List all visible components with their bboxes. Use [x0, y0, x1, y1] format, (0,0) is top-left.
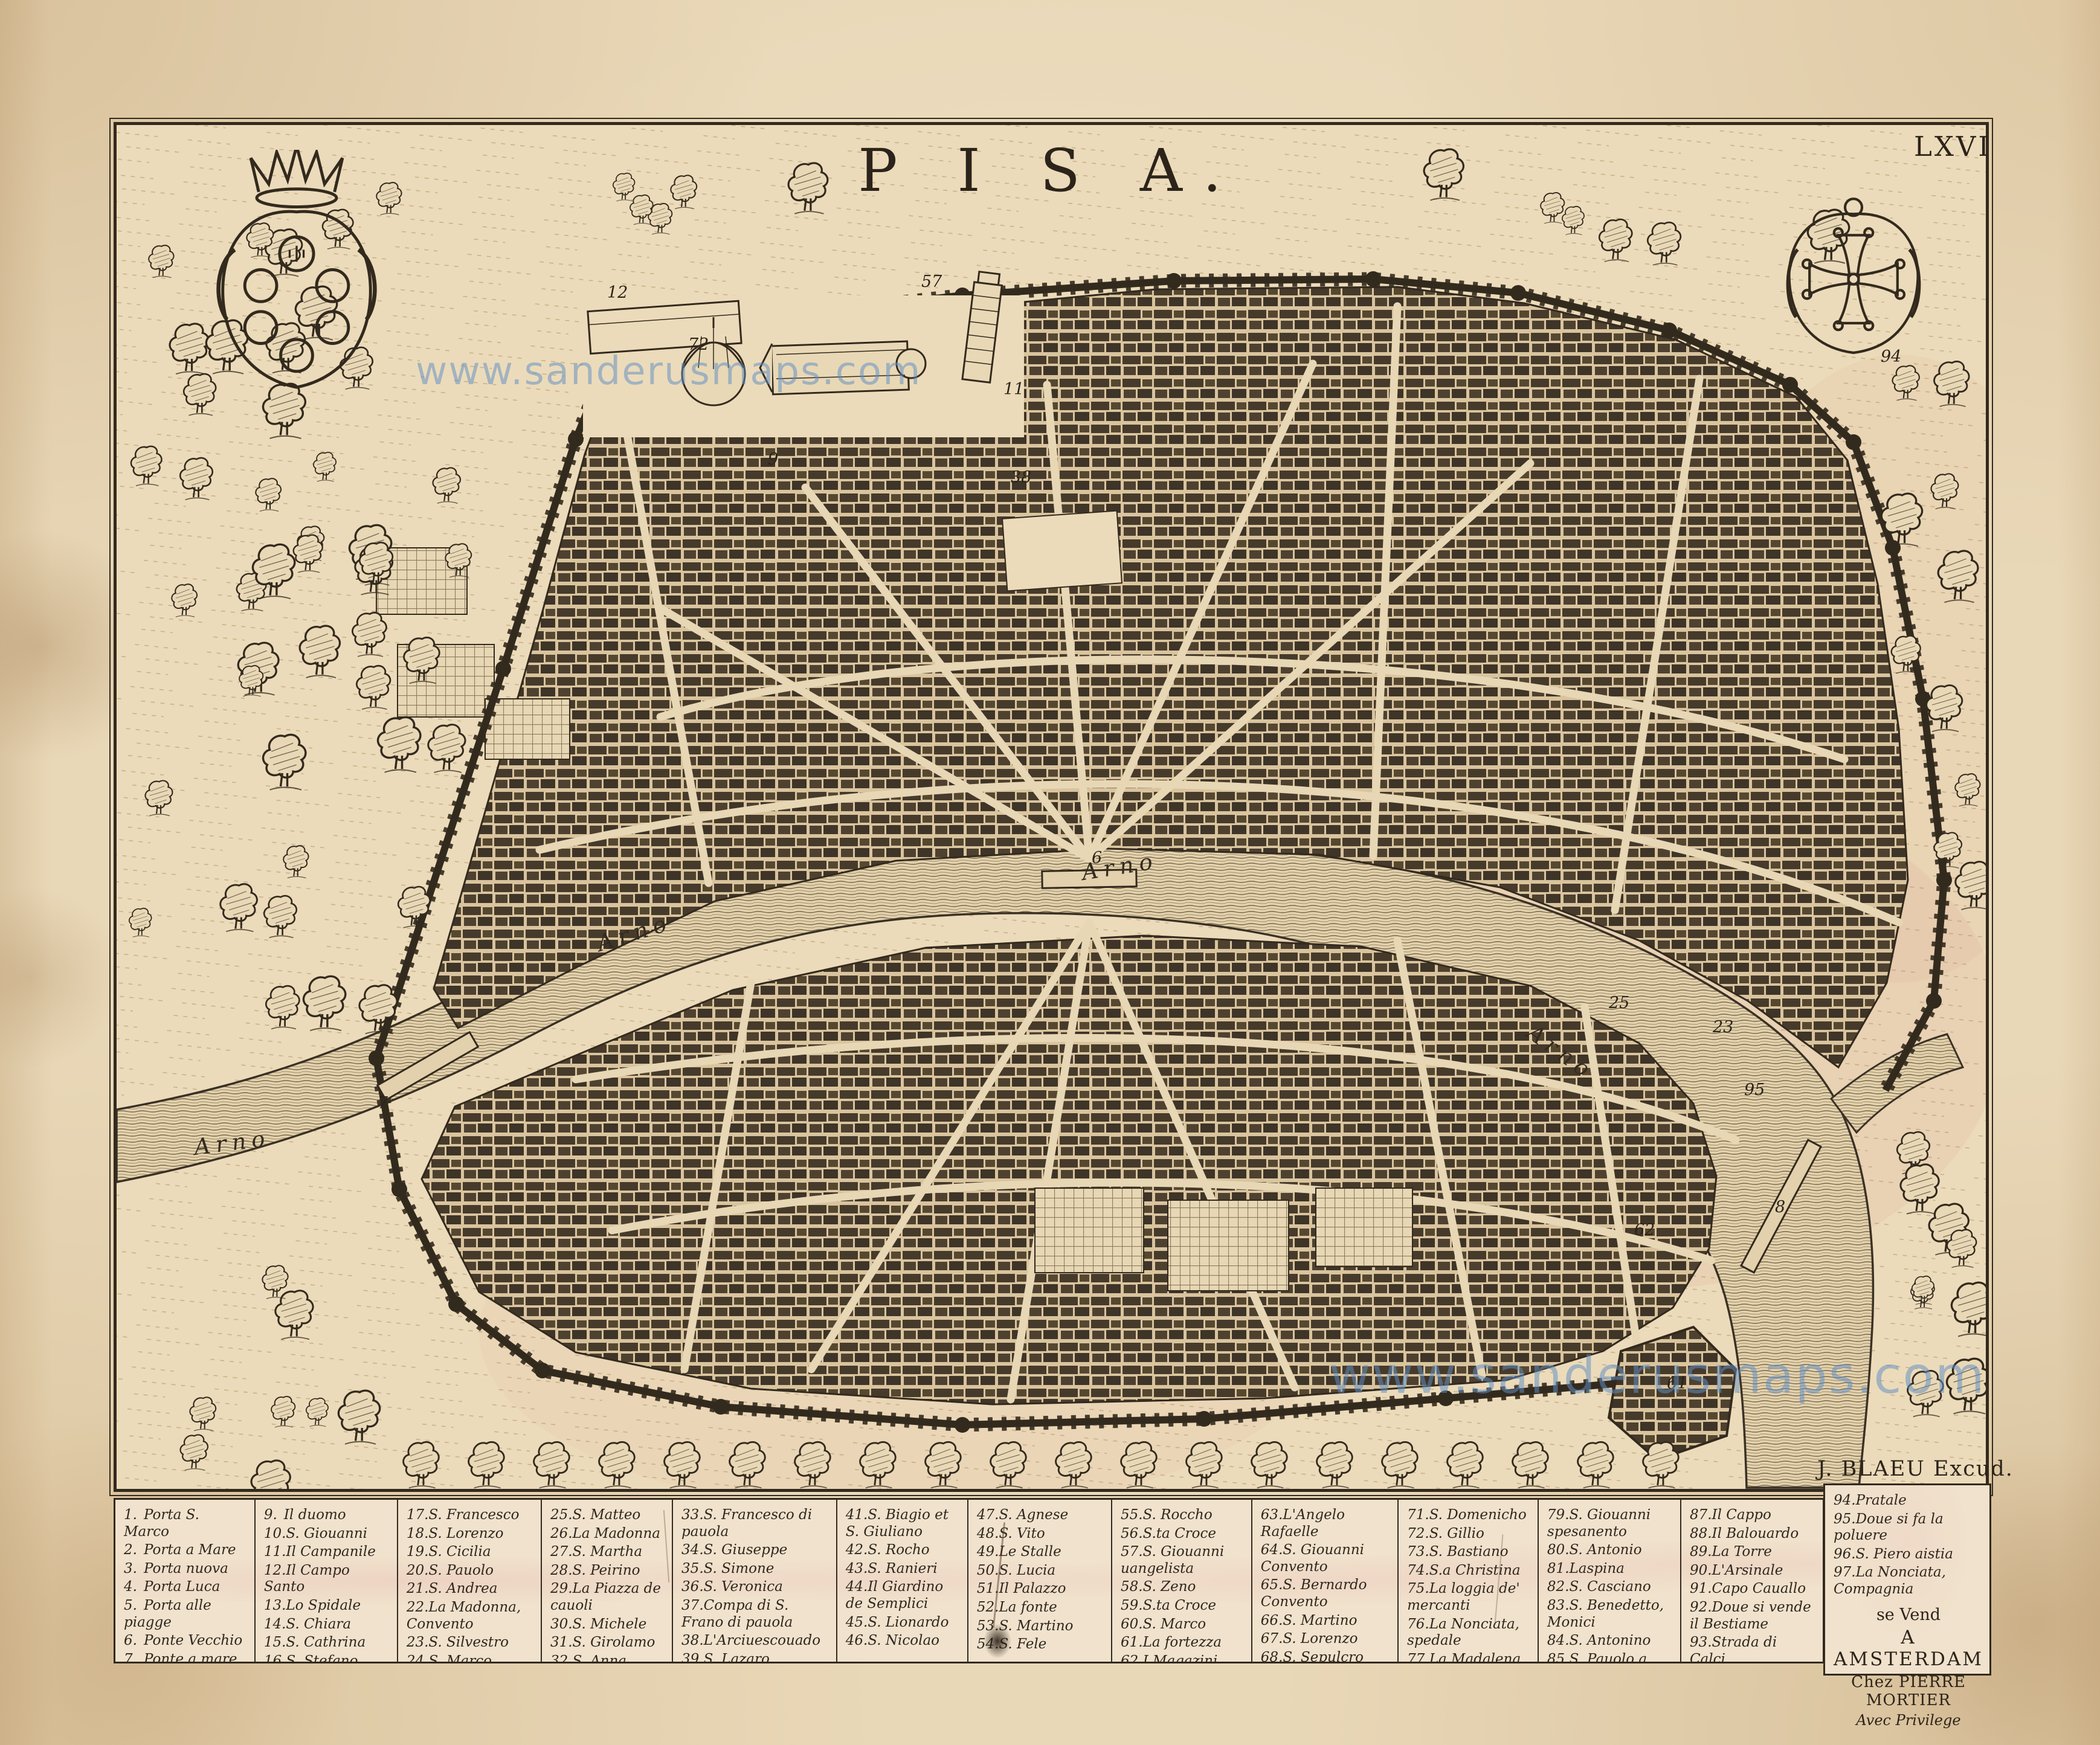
wall-tower: [955, 1417, 970, 1433]
legend-item: 75.La loggia de' mercanti: [1407, 1581, 1532, 1614]
fleur-de-lis-icon: [289, 246, 303, 262]
feature-number: 11: [1003, 380, 1024, 399]
legend-column: 63.L'Angelo Rafaelle64.S. Giouanni Conve…: [1252, 1500, 1399, 1662]
legend-item: 4.Porta Luca: [124, 1579, 248, 1596]
wall-tower: [1365, 271, 1381, 287]
engraver-credit: J. BLAEU Excud.: [1817, 1457, 1992, 1481]
legend-item: 57.S. Giouanni uangelista: [1121, 1544, 1245, 1577]
wall-tower: [1782, 377, 1798, 393]
legend-item: 63.L'Angelo Rafaelle: [1261, 1507, 1391, 1540]
publisher-imprint: se Vend A AMSTERDAM Chez PIERRE MORTIER …: [1834, 1605, 1983, 1729]
legend-item: 16.S. Stefano: [264, 1653, 391, 1662]
legend-item: 35.S. Simone: [681, 1561, 830, 1578]
legend-item: 33.S. Francesco di pauola: [681, 1507, 830, 1540]
legend-item: 79.S. Giouanni spesanento: [1547, 1507, 1674, 1540]
legend-item: 36.S. Veronica: [681, 1579, 830, 1596]
legend-item: 37.Compa di S. Frano di pauola: [681, 1598, 830, 1631]
pisa-coat-of-arms: [1769, 190, 1938, 371]
legend-item: 47.S. Agnese: [977, 1507, 1105, 1524]
legend-item: 41.S. Biagio et S. Giuliano: [846, 1507, 961, 1540]
pisan-cross-icon: [1803, 228, 1904, 330]
map-title: P I S A.: [858, 137, 1242, 205]
legend-item: 5.Porta alle piagge: [124, 1598, 248, 1631]
legend-column: 33.S. Francesco di pauola34.S. Giuseppe3…: [673, 1500, 837, 1662]
legend-item: 55.S. Roccho: [1121, 1507, 1245, 1524]
legend-column: 25.S. Matteo26.La Madonna27.S. Martha28.…: [542, 1500, 673, 1662]
legend-item: 3.Porta nuova: [124, 1561, 248, 1578]
imprint-line: A AMSTERDAM: [1834, 1627, 1983, 1670]
legend-item: 25.S. Matteo: [550, 1507, 666, 1524]
wall-tower: [1936, 872, 1952, 888]
feature-number: 57: [921, 272, 942, 291]
legend-item: 14.S. Chiara: [264, 1616, 391, 1633]
legend-item: 7.Ponte a mare: [124, 1651, 248, 1662]
legend-item: 66.S. Martino: [1261, 1613, 1391, 1630]
legend-item: 59.S.ta Croce: [1121, 1598, 1245, 1615]
wall-tower: [1196, 1411, 1212, 1427]
legend-item: 26.La Madonna: [550, 1526, 666, 1543]
wall-tower: [1166, 273, 1182, 289]
legend-item: 74.S.a Christina: [1407, 1563, 1532, 1579]
legend-item: 72.S. Gillio: [1407, 1526, 1532, 1543]
legend-item: 93.Strada di Calci: [1690, 1634, 1817, 1662]
legend-item: 76.La Nonciata, spedale: [1407, 1616, 1532, 1650]
legend-item: 88.Il Balouardo: [1690, 1526, 1817, 1543]
legend-item: 45.S. Lionardo: [846, 1615, 961, 1631]
feature-number: 12: [607, 283, 628, 302]
legend-item: 12.Il Campo Santo: [264, 1563, 391, 1596]
legend-item: 9.Il duomo: [264, 1507, 391, 1524]
legend-item: 97.La Nonciata, Compagnia: [1834, 1564, 1983, 1598]
legend-item: 18.S. Lorenzo: [407, 1526, 535, 1543]
legend-item: 56.S.ta Croce: [1121, 1526, 1245, 1543]
legend-item: 71.S. Domenicho: [1407, 1507, 1532, 1524]
feature-number: 25: [1608, 994, 1629, 1012]
legend-item: 46.S. Nicolao: [846, 1633, 961, 1650]
plate-number: LXVI: [1914, 130, 1991, 162]
imprint-line: Avec Privilege: [1834, 1712, 1983, 1729]
feature-number: 62: [1634, 1221, 1655, 1239]
feature-number: 23: [1712, 1018, 1733, 1036]
wall-tower: [1846, 434, 1861, 450]
legend-last-column: 94.Pratale95.Doue si fa la poluere96.S. …: [1823, 1483, 1991, 1676]
legend-item: 64.S. Giouanni Convento: [1261, 1542, 1391, 1575]
wall-tower: [1661, 323, 1677, 338]
legend-item: 17.S. Francesco: [407, 1507, 535, 1524]
legend-item: 49.Le Stalle: [977, 1544, 1105, 1561]
wall-tower: [1510, 285, 1526, 301]
legend-item: 27.S. Martha: [550, 1544, 666, 1561]
ink-blot: [984, 1624, 1011, 1659]
wall-tower: [448, 1296, 464, 1312]
legend-column: 79.S. Giouanni spesanento80.S. Antonio81…: [1539, 1500, 1681, 1662]
feature-number: 8: [1775, 1198, 1785, 1216]
legend-item: 58.S. Zeno: [1121, 1579, 1245, 1596]
legend-item: 84.S. Antonino: [1547, 1633, 1674, 1650]
legend-item: 29.La Piazza de cauoli: [550, 1581, 666, 1614]
wall-tower: [1926, 993, 1942, 1009]
legend-item: 11.Il Campanile: [264, 1544, 391, 1561]
legend-item: 87.Il Cappo: [1690, 1507, 1817, 1524]
legend-item: 61.La fortezza: [1121, 1634, 1245, 1651]
legend-item: 31.S. Girolamo: [550, 1634, 666, 1651]
legend-item: 38.L'Arciuescouado: [681, 1633, 830, 1650]
imprint-line: Chez PIERRE MORTIER: [1834, 1673, 1983, 1709]
legend-item: 10.S. Giouanni: [264, 1526, 391, 1543]
wall-tower: [495, 661, 511, 676]
legend-item: 80.S. Antonio: [1547, 1542, 1674, 1559]
legend-item: 92.Doue si vende il Bestiame: [1690, 1599, 1817, 1633]
engraved-map: Arno Arno Arno Arno 97211125738947625239…: [117, 125, 1986, 1489]
watermark-text: www.sanderusmaps.com: [416, 349, 921, 394]
legend-item: 19.S. Cicilia: [407, 1544, 535, 1561]
crown-icon: [251, 150, 343, 192]
legend-item: 34.S. Giuseppe: [681, 1542, 830, 1559]
piazza-cavalieri: [1002, 511, 1122, 591]
wall-tower: [369, 1050, 384, 1066]
legend-item: 30.S. Michele: [550, 1616, 666, 1633]
legend-item: 60.S. Marco: [1121, 1616, 1245, 1633]
legend-item: 23.S. Silvestro: [407, 1634, 535, 1651]
legend-item: 48.S. Vito: [977, 1526, 1105, 1543]
legend-item: 2.Porta a Mare: [124, 1542, 248, 1559]
legend-item: 1.Porta S. Marco: [124, 1507, 248, 1540]
legend-item: 90.L'Arsinale: [1690, 1563, 1817, 1579]
legend-column: 94.Pratale95.Doue si fa la poluere96.S. …: [1834, 1493, 1983, 1598]
legend-item: 50.S. Lucia: [977, 1563, 1105, 1579]
legend-item: 82.S. Casciano: [1547, 1579, 1674, 1596]
imprint-line: se Vend: [1834, 1605, 1983, 1624]
legend-column: 71.S. Domenicho72.S. Gillio73.S. Bastian…: [1399, 1500, 1539, 1662]
legend-item: 73.S. Bastiano: [1407, 1544, 1532, 1561]
legend-item: 6.Ponte Vecchio: [124, 1633, 248, 1650]
legend-column: 1.Porta S. Marco2.Porta a Mare3.Porta nu…: [115, 1500, 256, 1662]
legend-item: 22.La Madonna, Convento: [407, 1599, 535, 1633]
feature-number: 38: [1011, 468, 1031, 487]
wall-tower: [535, 1363, 550, 1378]
legend-item: 39.S. Lazaro: [681, 1651, 830, 1662]
legend-item: 94.Pratale: [1834, 1493, 1983, 1509]
wall-tower: [713, 1399, 729, 1415]
legend-item: 24.S. Marco: [407, 1653, 535, 1662]
legend-item: 28.S. Peirino: [550, 1563, 666, 1579]
legend-column: 87.Il Cappo88.Il Balouardo89.La Torre90.…: [1681, 1500, 1823, 1662]
legend-item: 65.S. Bernardo Convento: [1261, 1577, 1391, 1610]
legend-item: 13.Lo Spidale: [264, 1598, 391, 1615]
legend-item: 81.Laspina: [1547, 1561, 1674, 1578]
medici-coat-of-arms: [197, 150, 396, 410]
legend-item: 32.S. Anna: [550, 1653, 666, 1662]
feature-number: 7: [378, 1094, 388, 1113]
legend-item: 89.La Torre: [1690, 1544, 1817, 1561]
legend-item: 15.S. Cathrina: [264, 1634, 391, 1651]
feature-number: 95: [1744, 1081, 1765, 1099]
legend-column: 41.S. Biagio et S. Giuliano42.S. Rocho43…: [837, 1500, 968, 1662]
legend-item: 95.Doue si fa la poluere: [1834, 1511, 1983, 1544]
legend-column: 9.Il duomo10.S. Giouanni11.Il Campanile1…: [256, 1500, 398, 1662]
legend-item: 67.S. Lorenzo: [1261, 1631, 1391, 1648]
legend-item: 85.S. Pauolo a ripadorno: [1547, 1651, 1674, 1662]
legend-item: 42.S. Rocho: [846, 1542, 961, 1559]
feature-number: 6: [1092, 849, 1102, 867]
legend-item: 77.La Madalena: [1407, 1651, 1532, 1662]
legend-item: 43.S. Ranieri: [846, 1561, 961, 1578]
legend-item: 68.S. Sepulcro: [1261, 1650, 1391, 1662]
legend: 1.Porta S. Marco2.Porta a Mare3.Porta nu…: [114, 1498, 1825, 1663]
wall-tower: [391, 1181, 407, 1197]
wall-tower: [568, 431, 584, 447]
legend-item: 96.S. Piero aistia: [1834, 1546, 1983, 1563]
legend-column: 17.S. Francesco18.S. Lorenzo19.S. Cicili…: [398, 1500, 542, 1662]
legend-item: 21.S. Andrea: [407, 1581, 535, 1598]
legend-item: 44.Il Giardino de Semplici: [846, 1579, 961, 1612]
legend-item: 62.I Magazini: [1121, 1653, 1245, 1662]
feature-number: 9: [768, 450, 778, 469]
legend-column: 55.S. Roccho56.S.ta Croce57.S. Giouanni …: [1112, 1500, 1252, 1662]
legend-item: 20.S. Pauolo: [407, 1563, 535, 1579]
watermark-text: www.sanderusmaps.com: [1329, 1346, 1986, 1405]
legend-item: 91.Capo Cauallo: [1690, 1581, 1817, 1598]
legend-item: 83.S. Benedetto, Monici: [1547, 1598, 1674, 1631]
